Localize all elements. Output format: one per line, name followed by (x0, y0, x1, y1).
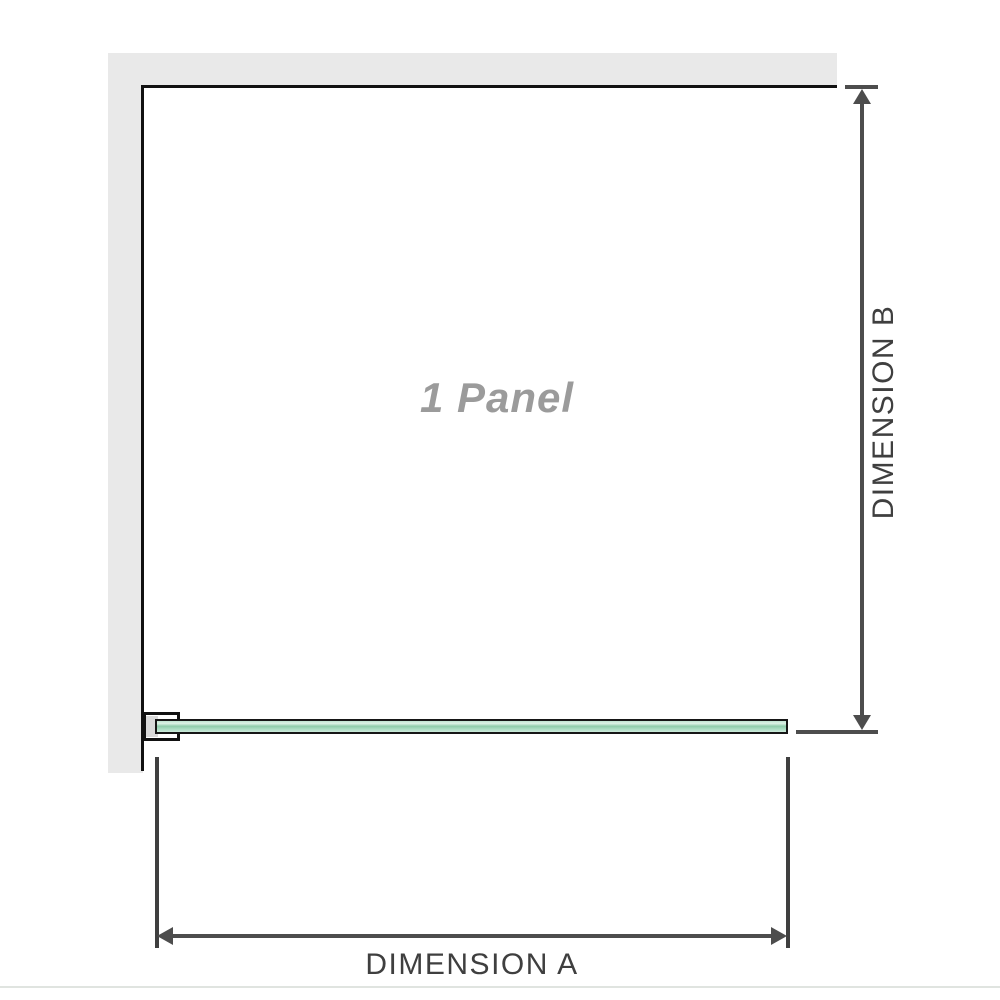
shower-panel-diagram: 1 Panel DIMENSION B DIMENSION A (0, 0, 1000, 1000)
glass-panel (155, 719, 788, 734)
frame-left-edge (141, 85, 144, 771)
dimension-a-extension-line-right (786, 757, 790, 948)
dimension-a-extension-line-left (155, 757, 159, 948)
dimension-b-arrowhead-up-icon (853, 89, 871, 104)
bottom-divider (0, 986, 1000, 988)
dimension-b-arrowhead-down-icon (853, 715, 871, 730)
frame-top-edge (143, 85, 837, 88)
dimension-b-line (860, 95, 864, 721)
wall-left (108, 53, 143, 773)
dimension-a-arrowhead-left-icon (157, 927, 173, 945)
dimension-a-arrowhead-right-icon (771, 927, 787, 945)
dimension-b-label: DIMENSION B (867, 305, 901, 520)
dimension-a-line (170, 934, 775, 938)
wall-top (108, 53, 837, 87)
panel-count-label: 1 Panel (420, 374, 574, 422)
dimension-b-tick-bottom (796, 730, 878, 734)
dimension-a-label: DIMENSION A (157, 948, 787, 982)
